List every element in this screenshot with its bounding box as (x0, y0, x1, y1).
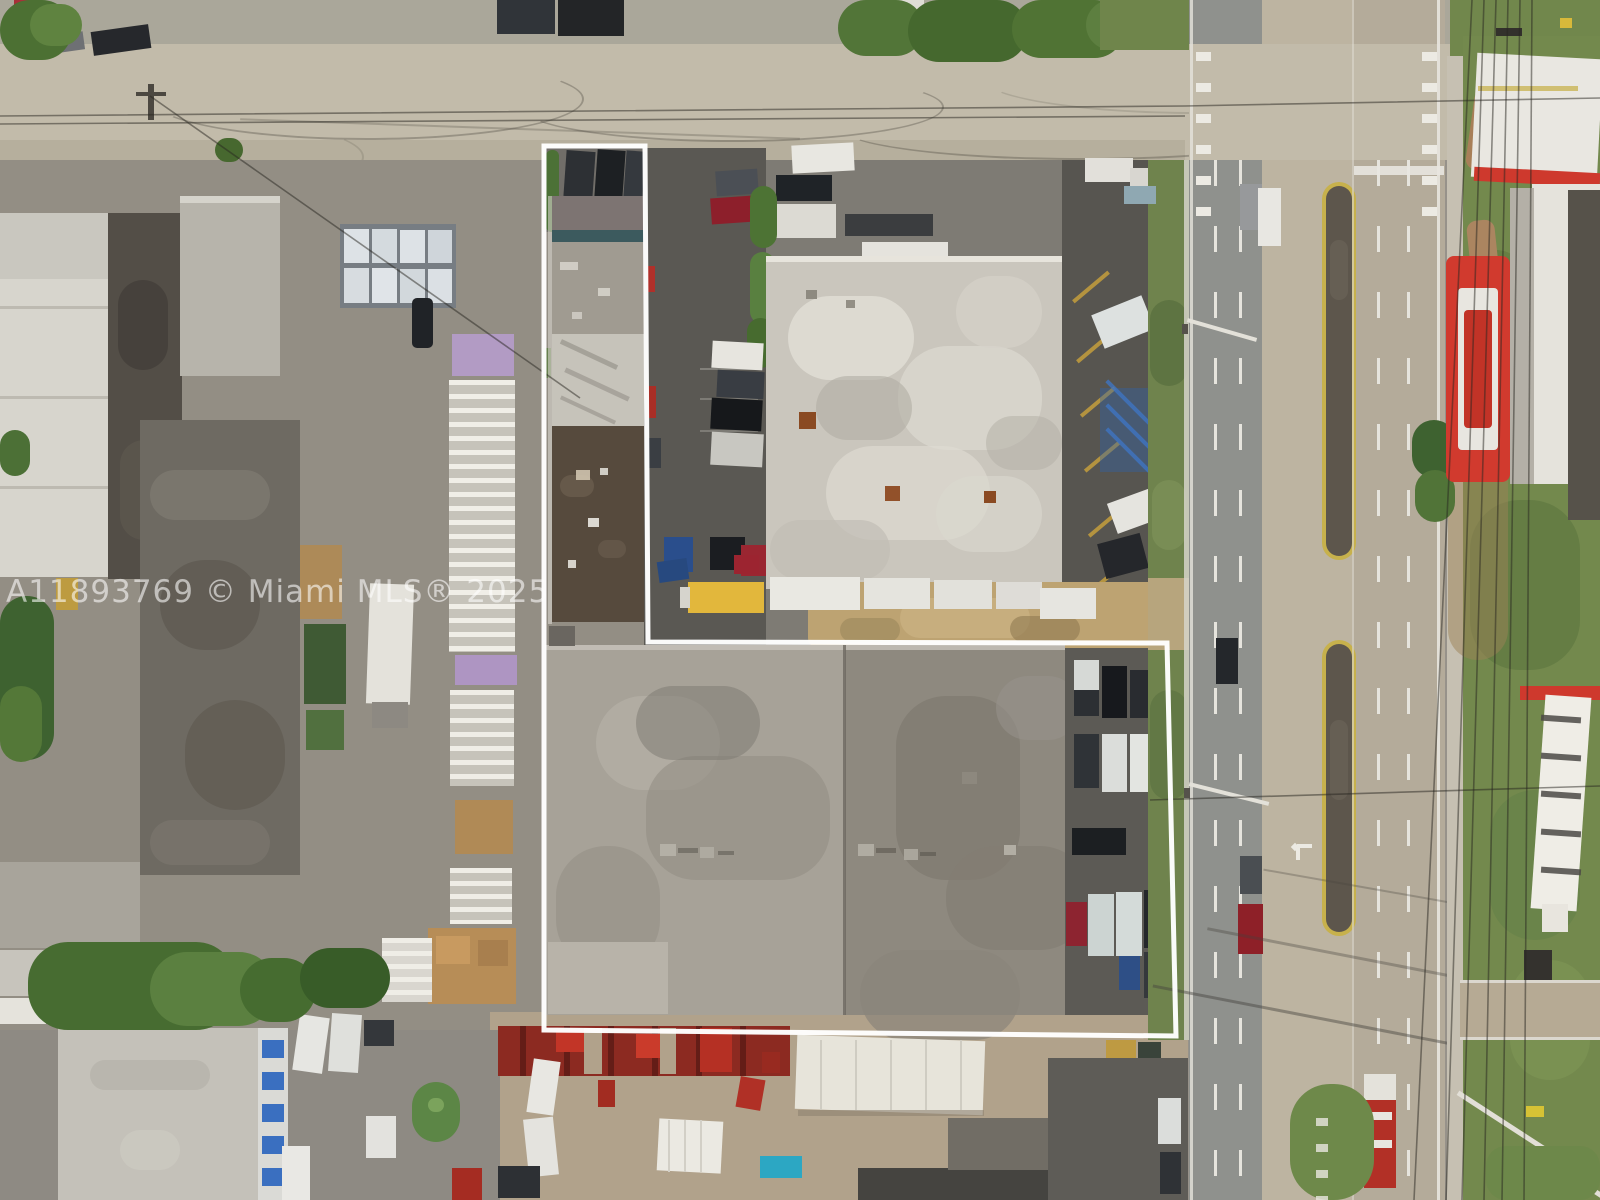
power-line (150, 96, 580, 398)
power-line (0, 116, 1185, 124)
power-line (1524, 0, 1532, 1200)
power-line (1150, 786, 1600, 800)
power-line (0, 98, 1600, 116)
aerial-photo: A11893769 © Miami MLS® 2025 (0, 0, 1600, 1200)
watermark: A11893769 © Miami MLS® 2025 (6, 574, 549, 610)
power-line (1414, 0, 1472, 1200)
property-boundary-outline (544, 146, 1176, 1036)
